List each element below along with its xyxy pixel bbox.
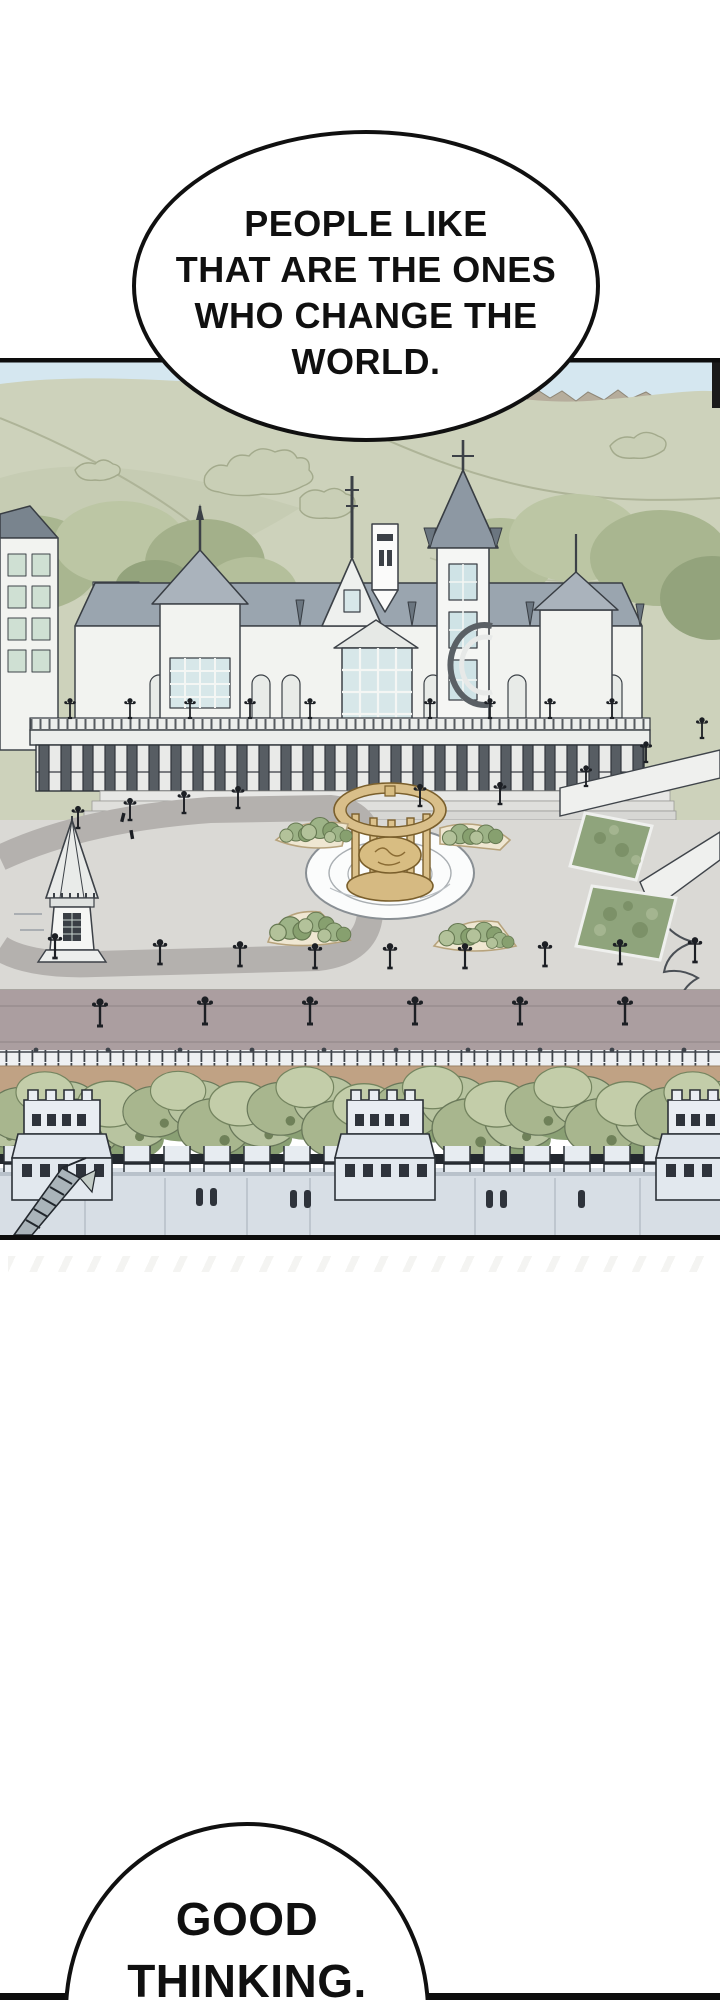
speech-bubble-bottom: GOOD THINKING. bbox=[64, 1822, 430, 2000]
panel-bottom-border bbox=[0, 1235, 720, 1240]
speech-bubble-top: PEOPLE LIKE THAT ARE THE ONES WHO CHANGE… bbox=[132, 130, 600, 442]
speech-line: WHO CHANGE THE bbox=[195, 293, 538, 339]
speech-line: THAT ARE THE ONES bbox=[176, 247, 557, 293]
palace-scene bbox=[0, 358, 720, 1240]
speech-line: PEOPLE LIKE bbox=[244, 201, 488, 247]
illustration-panel bbox=[0, 358, 720, 1240]
corner-dark-trees bbox=[712, 362, 720, 408]
speech-line: WORLD. bbox=[292, 339, 441, 385]
webtoon-page: PEOPLE LIKE THAT ARE THE ONES WHO CHANGE… bbox=[0, 0, 720, 2000]
speech-line: GOOD bbox=[176, 1888, 319, 1950]
faint-texture-strip bbox=[8, 1256, 712, 1272]
speech-line: THINKING. bbox=[127, 1950, 367, 2000]
outer-road bbox=[0, 990, 720, 1094]
